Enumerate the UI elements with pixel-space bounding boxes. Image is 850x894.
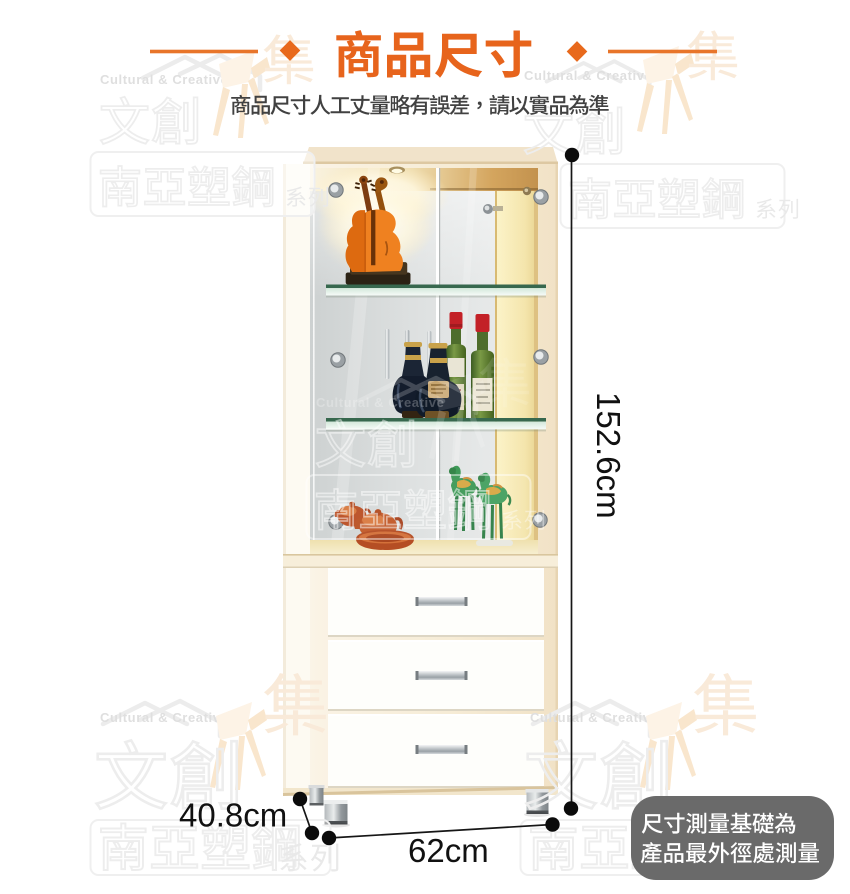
- svg-text:Cultural & Creative: Cultural & Creative: [100, 72, 228, 87]
- svg-text:152.6cm: 152.6cm: [590, 392, 627, 519]
- svg-text:62cm: 62cm: [408, 832, 489, 869]
- svg-text:Cultural & Creative: Cultural & Creative: [530, 710, 658, 725]
- svg-text:Cultural & Creative: Cultural & Creative: [524, 68, 652, 83]
- svg-text:40.8cm: 40.8cm: [179, 797, 287, 834]
- svg-text:Cultural & Creative: Cultural & Creative: [316, 395, 444, 410]
- svg-text:Cultural & Creative: Cultural & Creative: [100, 710, 228, 725]
